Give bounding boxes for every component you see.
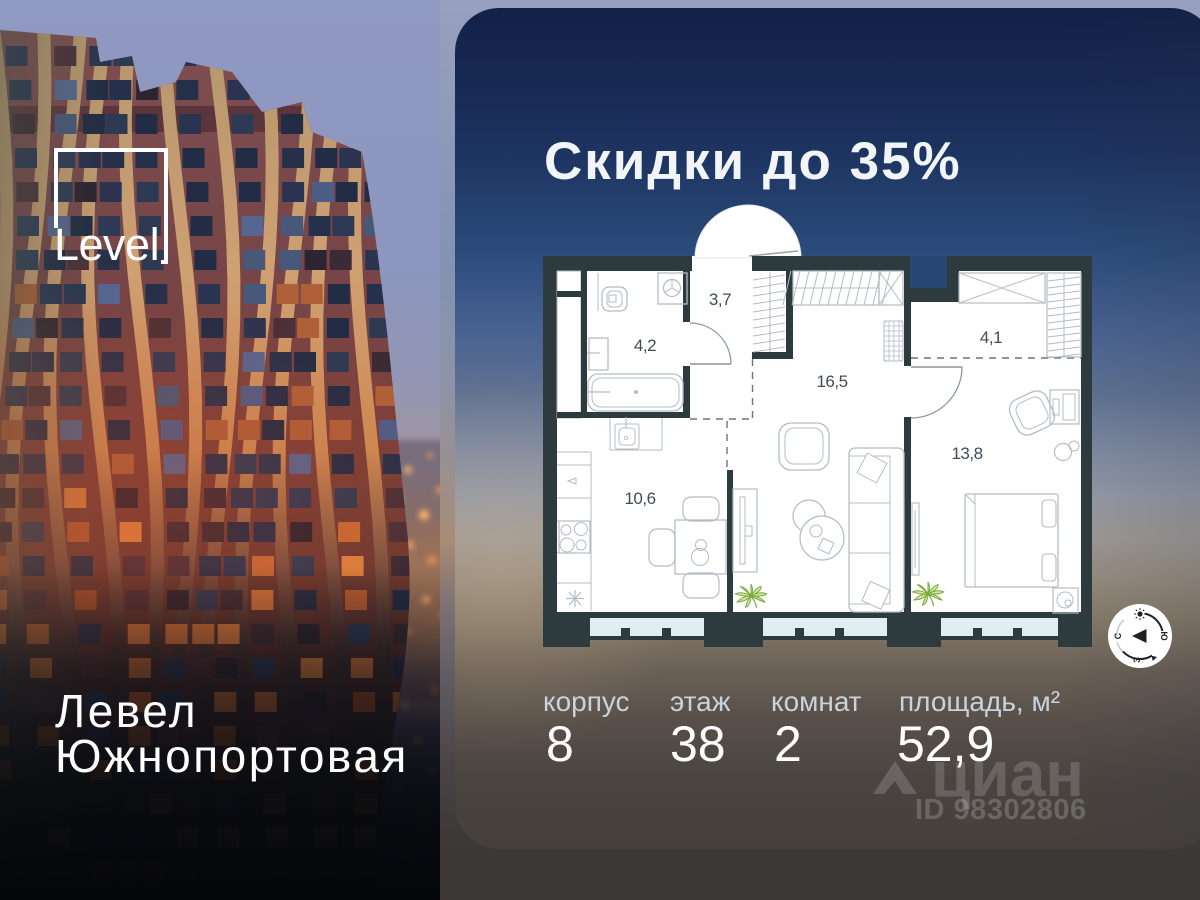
svg-text:ID 98302806: ID 98302806 (915, 794, 1087, 826)
